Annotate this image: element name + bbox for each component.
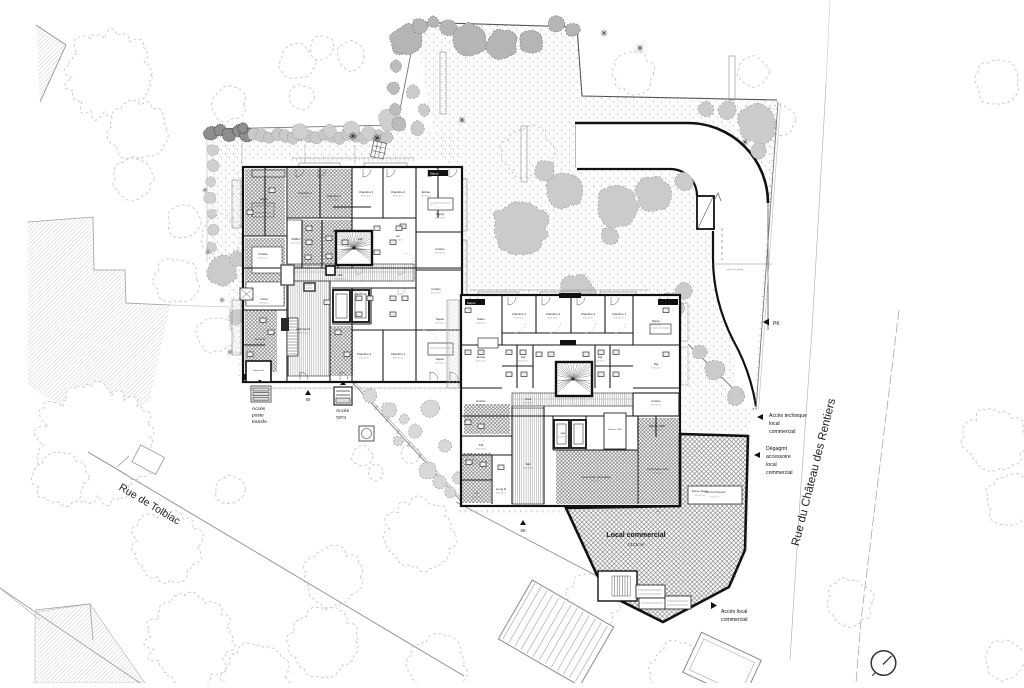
- svg-text:Surf: 0,0 m²: Surf: 0,0 m²: [518, 360, 528, 363]
- svg-text:Surf: 0,0 m²: Surf: 0,0 m²: [558, 436, 568, 439]
- svg-text:Surf: 0,0 m²: Surf: 0,0 m²: [361, 195, 371, 198]
- svg-text:Surf: 0,0 m²: Surf: 0,0 m²: [393, 239, 403, 242]
- svg-text:Entrée: Entrée: [477, 355, 486, 359]
- svg-text:Entrée: Entrée: [422, 190, 431, 194]
- svg-text:Surf: 0,0 m²: Surf: 0,0 m²: [258, 257, 268, 260]
- svg-text:Cuisine: Cuisine: [435, 247, 445, 251]
- svg-text:Surf: 0,0 m²: Surf: 0,0 m²: [298, 332, 308, 335]
- svg-text:Rgt: Rgt: [654, 362, 659, 366]
- svg-text:asc: asc: [561, 431, 566, 435]
- svg-text:Surf: 0,0 m²: Surf: 0,0 m²: [523, 467, 533, 470]
- svg-text:accessoire: accessoire: [766, 454, 791, 460]
- svg-text:Accès: Accès: [252, 406, 266, 412]
- svg-text:Surf: 0,0 m²: Surf: 0,0 m²: [476, 322, 486, 325]
- svg-text:cpcu: cpcu: [336, 416, 346, 421]
- svg-text:Accès: Accès: [336, 408, 350, 414]
- svg-text:wc: wc: [396, 234, 400, 238]
- svg-text:Cuisine: Cuisine: [258, 252, 268, 256]
- svg-text:Surf: 0,0 m²: Surf: 0,0 m²: [651, 367, 661, 370]
- svg-text:couloir accès parking: couloir accès parking: [726, 269, 743, 271]
- svg-text:commercial: commercial: [721, 617, 748, 623]
- svg-text:Surf: 0,0 m²: Surf: 0,0 m²: [393, 195, 403, 198]
- svg-text:Salon: Salon: [477, 317, 485, 321]
- svg-text:Lumg lit: Lumg lit: [496, 487, 506, 491]
- svg-text:Surf: 0,0 m²: Surf: 0,0 m²: [393, 357, 403, 360]
- svg-text:Chambre 3: Chambre 3: [546, 312, 561, 316]
- svg-text:Lit: Lit: [474, 491, 477, 495]
- svg-text:hall: hall: [338, 273, 343, 277]
- svg-text:Sall: Sall: [526, 462, 531, 466]
- svg-text:Séjour: Séjour: [430, 172, 439, 176]
- svg-text:Surf: 0,0 m²: Surf: 0,0 m²: [710, 496, 720, 499]
- svg-text:Surf: 0,0 m²: Surf: 0,0 m²: [435, 322, 445, 325]
- svg-text:68: 68: [306, 397, 311, 402]
- svg-text:local: local: [769, 421, 780, 427]
- svg-text:Surf: 0,0 m²: Surf: 0,0 m²: [476, 448, 486, 451]
- svg-text:Surf: 0,0 m²: Surf: 0,0 m²: [255, 342, 265, 345]
- svg-text:Sxll: Sxll: [479, 443, 484, 447]
- svg-text:Surf: 0,0 m²: Surf: 0,0 m²: [359, 357, 369, 360]
- svg-text:Chambre 1: Chambre 1: [612, 312, 627, 316]
- svg-text:Surf: 0,0 m²: Surf: 0,0 m²: [435, 217, 445, 220]
- svg-text:Chambre 1: Chambre 1: [298, 191, 313, 195]
- svg-text:Surf: 0,0 m²: Surf: 0,0 m²: [476, 404, 486, 407]
- svg-text:Cuisine: Cuisine: [431, 287, 441, 291]
- svg-text:Surf: 0,0 m²: Surf: 0,0 m²: [435, 362, 445, 365]
- svg-text:transfo: transfo: [252, 419, 267, 425]
- svg-text:66: 66: [520, 528, 526, 533]
- svg-text:Surf: 0,0 m²: Surf: 0,0 m²: [291, 242, 301, 245]
- svg-text:Lume lit: Lume lit: [255, 337, 265, 341]
- svg-text:Cuisine: Cuisine: [476, 399, 486, 403]
- svg-text:Surf: 0,0 m²: Surf: 0,0 m²: [300, 196, 310, 199]
- svg-text:Lit/col: Lit/col: [260, 297, 268, 301]
- svg-text:Local commercial: Local commercial: [606, 532, 665, 539]
- svg-text:Surf: 0,0 m²: Surf: 0,0 m²: [355, 242, 365, 245]
- svg-text:PK: PK: [773, 321, 780, 327]
- svg-text:Chambre 4: Chambre 4: [512, 312, 527, 316]
- svg-text:Sol: 143,5 m²: Sol: 143,5 m²: [695, 494, 706, 497]
- svg-text:Accès technique: Accès technique: [769, 413, 807, 419]
- svg-text:Séjour: Séjour: [652, 319, 660, 323]
- svg-text:Surf: 0,0 m²: Surf: 0,0 m²: [335, 278, 345, 281]
- svg-text:Séjour: Séjour: [436, 357, 444, 361]
- svg-text:Rampe d'accès: Rampe d'accès: [692, 490, 709, 493]
- svg-text:Séjour: Séjour: [436, 317, 444, 321]
- svg-text:Coul: Coul: [525, 397, 531, 401]
- svg-text:Surf: 0,0 m²: Surf: 0,0 m²: [652, 429, 662, 432]
- svg-text:Chambre 1: Chambre 1: [391, 352, 406, 356]
- svg-text:Surf: 0,0 m²: Surf: 0,0 m²: [591, 480, 601, 483]
- svg-text:Surf: 0,0 m²: Surf: 0,0 m²: [471, 496, 481, 499]
- svg-text:Surf: 0,0 m²: Surf: 0,0 m²: [653, 472, 663, 475]
- svg-text:Surf: 0,0 m²: Surf: 0,0 m²: [514, 317, 524, 320]
- svg-text:Surf: 0,0 m²: Surf: 0,0 m²: [476, 360, 486, 363]
- svg-text:sdb: sdb: [358, 237, 363, 241]
- svg-text:Réserve ORP: Réserve ORP: [608, 428, 622, 431]
- svg-text:Surf: 0,0 m²: Surf: 0,0 m²: [259, 302, 269, 305]
- svg-text:Sd/Bns: Sd/Bns: [291, 237, 301, 241]
- svg-text:Surf: 0,0 m²: Surf: 0,0 m²: [421, 195, 431, 198]
- svg-text:Dgt: Dgt: [598, 355, 603, 359]
- svg-text:Séjour: Séjour: [467, 301, 476, 305]
- svg-text:Surf: 0,0 m²: Surf: 0,0 m²: [548, 317, 558, 320]
- svg-text:Transfo telf: Transfo telf: [253, 369, 264, 372]
- svg-text:Chambre 2: Chambre 2: [327, 194, 342, 198]
- svg-text:143,5 m²: 143,5 m²: [628, 542, 646, 547]
- svg-text:Surf: 0,0 m²: Surf: 0,0 m²: [595, 360, 605, 363]
- svg-text:Surf: 0,0 m²: Surf: 0,0 m²: [583, 317, 593, 320]
- svg-text:Surf: 0,0 m²: Surf: 0,0 m²: [431, 292, 441, 295]
- svg-text:Surf: 0,0 m²: Surf: 0,0 m²: [651, 404, 661, 407]
- svg-text:Hall tout lit: Hall tout lit: [296, 327, 310, 331]
- svg-text:poste: poste: [252, 413, 264, 419]
- svg-text:Surf: 0,0 m²: Surf: 0,0 m²: [651, 324, 661, 327]
- svg-text:Chambre 4: Chambre 4: [391, 190, 406, 194]
- svg-text:Surf: 0,0 m²: Surf: 0,0 m²: [329, 199, 339, 202]
- svg-text:Local ordur. poussettes: Local ordur. poussettes: [581, 475, 611, 479]
- svg-text:commercial: commercial: [769, 429, 796, 435]
- svg-text:Cuisine: Cuisine: [651, 399, 661, 403]
- svg-text:Chambre 3: Chambre 3: [359, 190, 374, 194]
- svg-text:Surf: 0,0 m²: Surf: 0,0 m²: [614, 317, 624, 320]
- svg-text:Séjour: Séjour: [436, 212, 444, 216]
- svg-text:Surf: 0,0 m²: Surf: 0,0 m²: [496, 492, 506, 495]
- svg-text:Surf: 0,0 m²: Surf: 0,0 m²: [523, 402, 533, 405]
- svg-text:Chambre 2: Chambre 2: [581, 312, 596, 316]
- svg-text:Dgt: Dgt: [521, 355, 526, 359]
- svg-text:Accès local: Accès local: [721, 609, 747, 615]
- svg-text:Dégagmt: Dégagmt: [766, 446, 788, 452]
- svg-text:Séjour: Séjour: [260, 197, 268, 201]
- svg-text:Chambre 2: Chambre 2: [357, 352, 372, 356]
- svg-text:Surf: 0,0 m²: Surf: 0,0 m²: [259, 202, 269, 205]
- svg-text:commercial: commercial: [766, 470, 793, 476]
- svg-text:local: local: [766, 462, 777, 468]
- svg-text:Local vélos cons.: Local vélos cons.: [647, 467, 669, 471]
- svg-text:Surf: 0,0 m²: Surf: 0,0 m²: [435, 252, 445, 255]
- svg-text:Naturel ORP: Naturel ORP: [649, 424, 665, 428]
